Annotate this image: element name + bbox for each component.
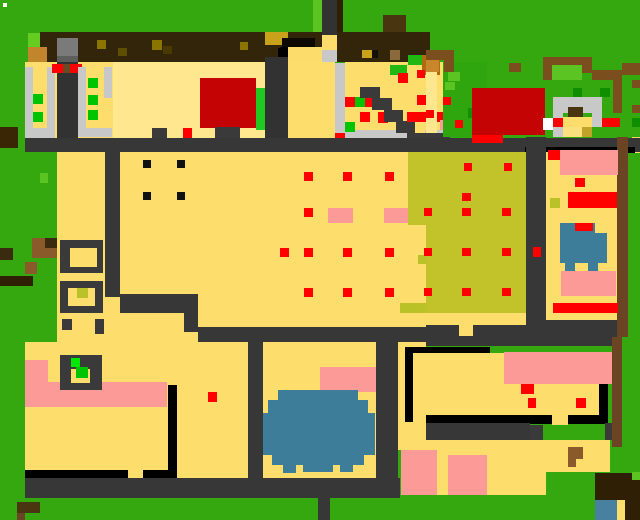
green-item	[71, 358, 80, 367]
olive-item	[550, 198, 560, 208]
bottom-band	[25, 478, 400, 498]
wall-red-dot	[533, 247, 541, 257]
entrance-path	[318, 498, 330, 520]
red-dot	[575, 178, 585, 187]
pond-water	[283, 464, 296, 473]
blackbox-left	[405, 347, 413, 422]
black-wall-vertical	[168, 385, 177, 478]
food-green	[355, 97, 365, 107]
lower-band	[426, 423, 530, 440]
arch-gold-floor	[582, 127, 592, 137]
red-dot	[462, 193, 471, 201]
counter-right-left	[78, 67, 86, 137]
red-dot	[464, 163, 472, 171]
garden-tan-column	[426, 72, 437, 133]
counter-left-inner	[47, 67, 55, 128]
roof-light-green	[28, 33, 40, 47]
red-item	[548, 150, 560, 160]
berry-red	[426, 110, 434, 118]
red-building-roof	[472, 88, 545, 135]
red-dot	[502, 208, 511, 216]
counter-left-bottom	[25, 128, 55, 138]
wall-pixel	[62, 319, 72, 330]
pink-table	[384, 208, 408, 223]
shed-brown	[625, 500, 640, 520]
green-item	[88, 110, 98, 120]
stove-red-top	[575, 223, 593, 231]
terrace-olive	[426, 152, 526, 313]
food-red	[360, 112, 370, 122]
lower-band	[426, 325, 546, 346]
red-dot	[576, 398, 586, 408]
stall-olive-item	[77, 288, 88, 298]
food-green	[345, 122, 355, 132]
olive-bar	[400, 303, 426, 313]
red-dot	[424, 248, 432, 256]
fence-brown	[568, 447, 583, 459]
wing-brown-fence	[617, 137, 628, 337]
roof-gold-tile	[362, 50, 372, 58]
wing-red-bar	[553, 303, 618, 313]
red-dot	[424, 288, 432, 296]
red-bar	[602, 118, 620, 127]
porch-door	[322, 35, 337, 50]
back-path-dark	[322, 0, 337, 35]
fence-brown	[632, 80, 640, 88]
wing-pink-table	[561, 271, 616, 296]
door-gap-tan	[552, 415, 568, 425]
sign-post	[17, 513, 25, 520]
roof-gold-tile	[118, 48, 127, 56]
red-dot	[208, 392, 217, 402]
fence-brown	[444, 50, 454, 72]
red-dot	[462, 208, 471, 216]
red-dot	[424, 208, 432, 216]
pond-water	[263, 413, 375, 455]
chimney	[57, 38, 78, 58]
red-dot	[304, 172, 313, 181]
red-dot	[280, 248, 289, 257]
olive-pixel	[418, 255, 426, 264]
red-dot	[304, 208, 313, 217]
pink-carpet	[25, 360, 48, 382]
staircase-step	[372, 98, 392, 110]
black-dot	[177, 160, 185, 168]
red-dot	[304, 288, 313, 297]
divider-door	[280, 47, 288, 57]
green-item	[88, 95, 98, 105]
tree-branch-dark	[45, 238, 57, 248]
shed-tan-path	[617, 500, 625, 520]
food-red	[417, 70, 425, 78]
staircase-step	[396, 121, 415, 133]
fence-brown	[582, 65, 592, 73]
food-red	[345, 97, 355, 107]
hall-wall-horizontal	[120, 294, 198, 313]
fence-brown	[622, 63, 640, 75]
red-dot	[385, 248, 394, 257]
red-item	[521, 384, 534, 394]
arch-doorway	[563, 117, 592, 127]
red-item	[183, 128, 192, 138]
wall-block	[152, 128, 167, 138]
red-dot	[462, 248, 471, 256]
hall-wall-band	[198, 327, 426, 342]
wall-block	[215, 127, 240, 138]
stage-red	[200, 78, 256, 128]
bush-shadow	[632, 118, 640, 127]
red-dot	[343, 248, 352, 257]
roof-gold-tile	[163, 46, 172, 54]
green-item	[33, 112, 43, 122]
pink-table	[448, 455, 487, 495]
bush-highlight	[448, 72, 460, 81]
grass-highlight	[632, 472, 640, 480]
fence-brown	[612, 337, 622, 447]
red-dot	[528, 398, 536, 408]
green-item	[88, 78, 98, 88]
roof-golden-corner	[28, 47, 47, 62]
blackbox-pink	[504, 352, 614, 384]
pink-table	[401, 450, 437, 495]
red-dot	[462, 288, 471, 296]
stair-corridor	[57, 62, 78, 138]
wing-band	[546, 320, 617, 346]
bottomleft-floor	[25, 342, 248, 478]
divider-wall	[265, 57, 288, 138]
fence-brown	[632, 105, 640, 113]
roof-black-pixel	[372, 50, 378, 58]
bush-shadow	[573, 88, 582, 97]
arch-foot	[553, 127, 563, 137]
berry-red	[443, 97, 451, 105]
fence-brown	[543, 65, 552, 80]
pink-table	[328, 208, 353, 223]
pond-room-wall	[248, 342, 263, 498]
stall-interior	[70, 248, 97, 267]
wing-wall	[526, 137, 546, 325]
bush-highlight	[445, 82, 455, 90]
sign-brown	[17, 502, 40, 513]
red-item	[553, 118, 563, 127]
tree-trunk	[0, 248, 13, 260]
black-wall-line	[25, 470, 128, 478]
blackbox-top	[405, 347, 490, 353]
red-dot	[502, 288, 511, 296]
wall-pixel	[95, 319, 104, 334]
roof-gold-tile	[240, 42, 248, 50]
hall-wall-vertical	[105, 150, 120, 297]
red-dot	[504, 163, 512, 171]
roof-brown-light	[390, 50, 400, 60]
counter-right-right	[104, 67, 112, 98]
food-red	[398, 73, 408, 83]
stove-notch	[595, 223, 607, 233]
red-dot	[304, 248, 313, 257]
wing-pink-table	[560, 150, 618, 175]
wall-block	[530, 425, 543, 440]
wing-red-bar	[568, 192, 617, 208]
red-item	[52, 64, 63, 73]
berry-red	[455, 120, 463, 128]
tree-canopy-brown	[383, 15, 406, 32]
fence-brown	[592, 70, 622, 80]
porch-step	[322, 50, 337, 62]
green-item	[76, 367, 88, 378]
stage-green-strip	[256, 88, 265, 130]
red-dot	[502, 248, 511, 256]
arch-white-sign	[543, 118, 553, 130]
tree-branch	[25, 262, 37, 274]
band-red-strip	[472, 135, 503, 143]
green-item	[33, 94, 43, 104]
red-dot	[343, 288, 352, 297]
arch-right-leg	[592, 113, 602, 127]
bush-shadow	[600, 88, 610, 97]
tree-trunk	[0, 276, 33, 286]
shed-blue	[595, 500, 617, 520]
pond-water	[303, 464, 333, 472]
roof-gold-tile	[97, 40, 106, 49]
black-dot	[143, 160, 151, 168]
counter-right-bottom	[78, 128, 112, 137]
roof-gold-tile	[152, 40, 162, 50]
grass-highlight	[40, 173, 48, 183]
arch-lintel	[568, 107, 583, 117]
arch-pale-floor	[563, 127, 582, 137]
corridor-door	[63, 64, 70, 73]
grass-light-strip	[313, 0, 322, 32]
fence-brown	[568, 459, 576, 467]
black-dot	[177, 192, 185, 200]
pole-brown	[337, 0, 343, 32]
game-map-viewport[interactable]	[0, 0, 640, 520]
red-dot	[385, 172, 394, 181]
staircase-step	[360, 87, 380, 98]
kitchen-green-patch	[408, 55, 422, 65]
garden-light-patch	[552, 65, 582, 80]
map-white-dot	[3, 3, 7, 7]
fence-brown	[426, 50, 446, 60]
fence-brown	[509, 63, 521, 72]
fence-brown	[543, 57, 592, 65]
dark-brown-block	[0, 127, 18, 148]
fence-brown	[613, 80, 622, 113]
pond-room-wall	[376, 342, 398, 498]
red-dot	[385, 288, 394, 297]
pond-water	[340, 462, 353, 472]
red-dot	[343, 172, 352, 181]
pond-pink-table	[320, 367, 376, 392]
hall-wall-step	[184, 313, 198, 332]
black-dot	[143, 192, 151, 200]
band-tan-gap	[459, 325, 473, 336]
blackbox-right	[599, 384, 608, 424]
porch-tan	[288, 47, 322, 62]
entry-corridor-floor	[288, 62, 335, 138]
kitchen-counter	[335, 63, 345, 133]
